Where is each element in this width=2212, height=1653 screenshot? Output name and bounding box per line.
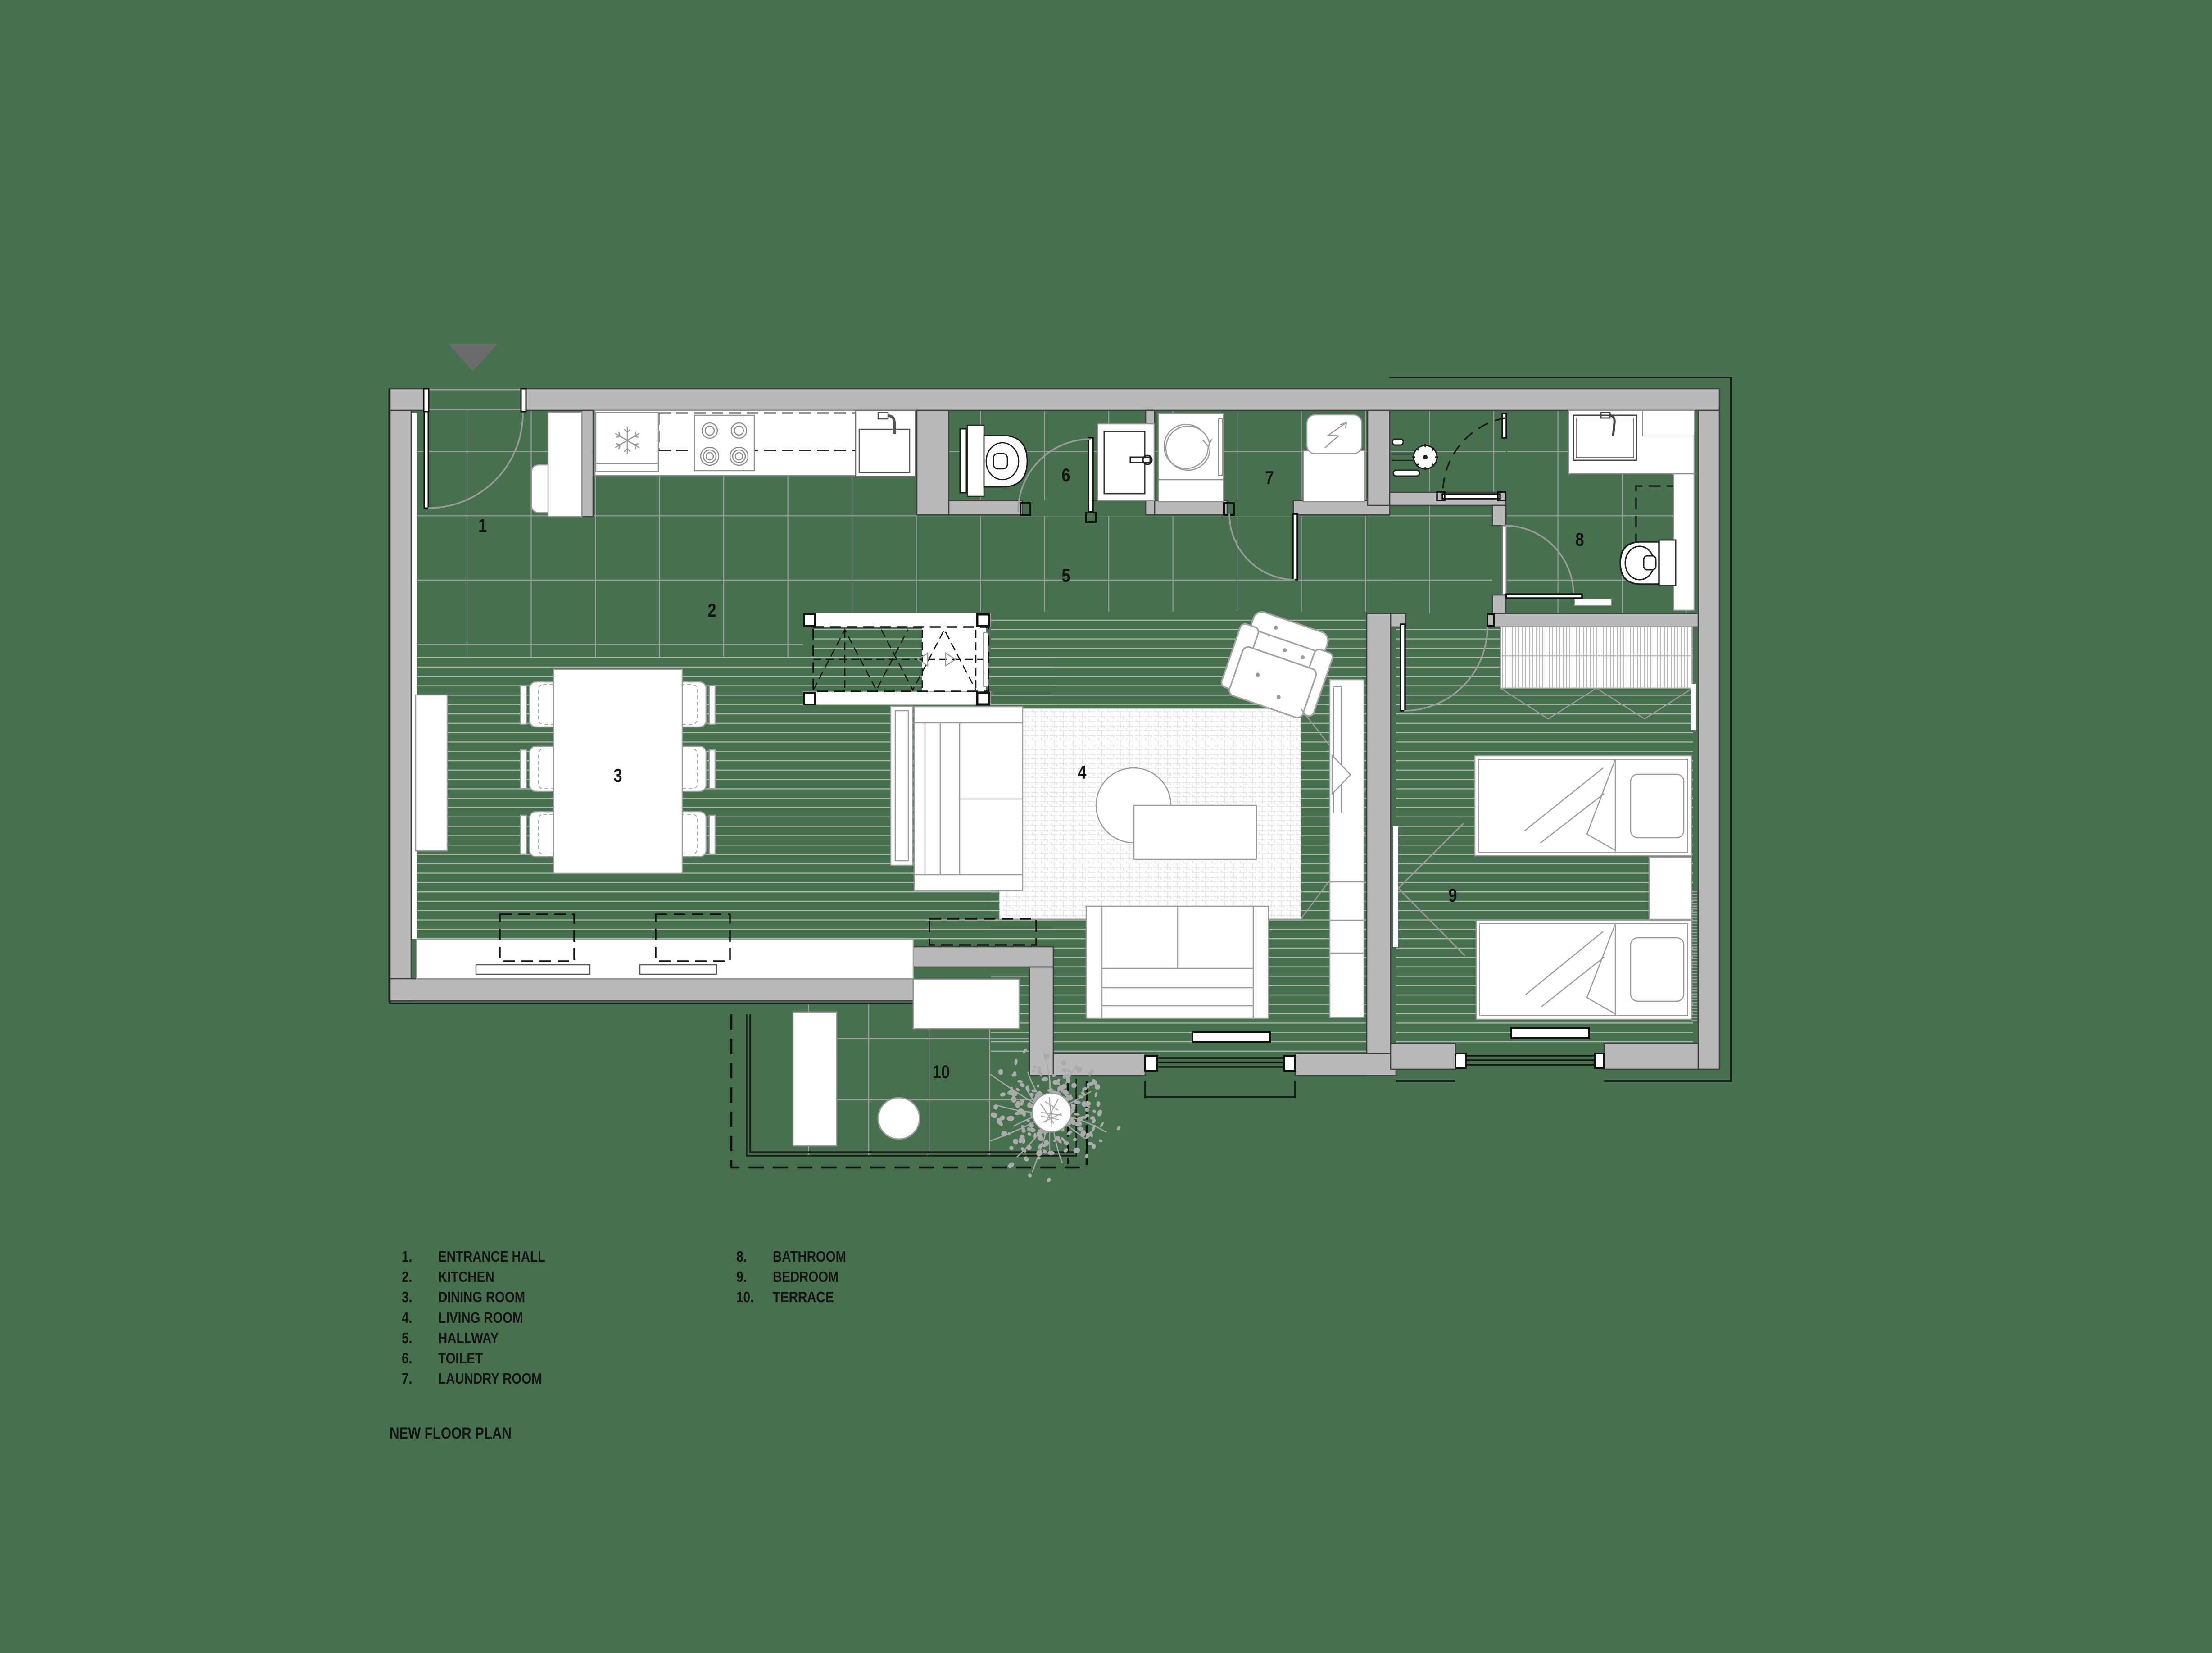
svg-text:4.: 4. [402, 1310, 412, 1326]
svg-text:10: 10 [933, 1062, 950, 1083]
svg-text:10.: 10. [736, 1289, 754, 1306]
svg-text:BATHROOM: BATHROOM [773, 1249, 846, 1265]
svg-text:TOILET: TOILET [438, 1350, 483, 1367]
svg-text:NEW FLOOR PLAN: NEW FLOOR PLAN [390, 1425, 512, 1442]
svg-text:2.: 2. [402, 1269, 412, 1285]
svg-text:9: 9 [1448, 885, 1457, 906]
svg-text:4: 4 [1078, 762, 1087, 783]
svg-text:TERRACE: TERRACE [773, 1289, 834, 1306]
svg-text:3.: 3. [402, 1289, 412, 1306]
svg-text:7: 7 [1265, 468, 1274, 489]
svg-text:HALLWAY: HALLWAY [438, 1330, 499, 1347]
svg-text:KITCHEN: KITCHEN [438, 1269, 494, 1285]
svg-text:9.: 9. [736, 1269, 747, 1285]
svg-text:8: 8 [1575, 529, 1584, 550]
svg-text:5.: 5. [402, 1330, 412, 1347]
svg-text:3: 3 [613, 765, 622, 786]
svg-text:LAUNDRY ROOM: LAUNDRY ROOM [438, 1371, 542, 1387]
svg-text:5: 5 [1061, 565, 1070, 586]
svg-text:6.: 6. [402, 1350, 412, 1367]
svg-text:6: 6 [1061, 465, 1070, 486]
svg-text:1: 1 [478, 515, 487, 536]
svg-text:ENTRANCE HALL: ENTRANCE HALL [438, 1249, 545, 1265]
svg-text:8.: 8. [736, 1249, 747, 1265]
svg-text:7.: 7. [402, 1371, 412, 1387]
svg-text:LIVING ROOM: LIVING ROOM [438, 1310, 523, 1326]
svg-text:BEDROOM: BEDROOM [773, 1269, 839, 1285]
svg-text:1.: 1. [402, 1249, 412, 1265]
svg-text:DINING ROOM: DINING ROOM [438, 1289, 525, 1306]
svg-text:2: 2 [707, 600, 716, 621]
